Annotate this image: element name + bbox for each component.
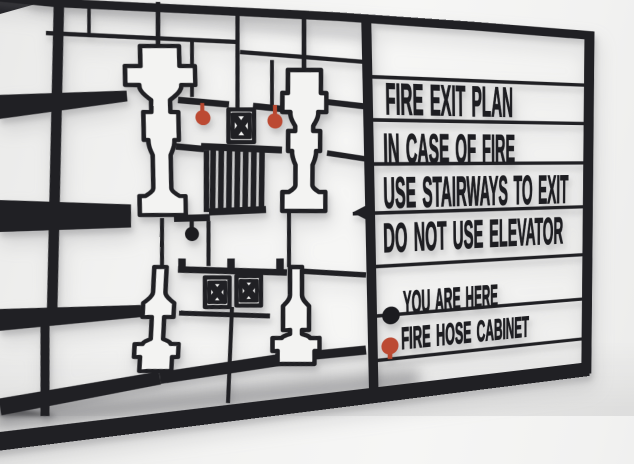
svg-text:DO NOT USE ELEVATOR: DO NOT USE ELEVATOR (383, 210, 564, 261)
svg-text:FIRE EXIT PLAN: FIRE EXIT PLAN (385, 73, 513, 125)
svg-text:IN CASE OF FIRE: IN CASE OF FIRE (383, 125, 515, 172)
